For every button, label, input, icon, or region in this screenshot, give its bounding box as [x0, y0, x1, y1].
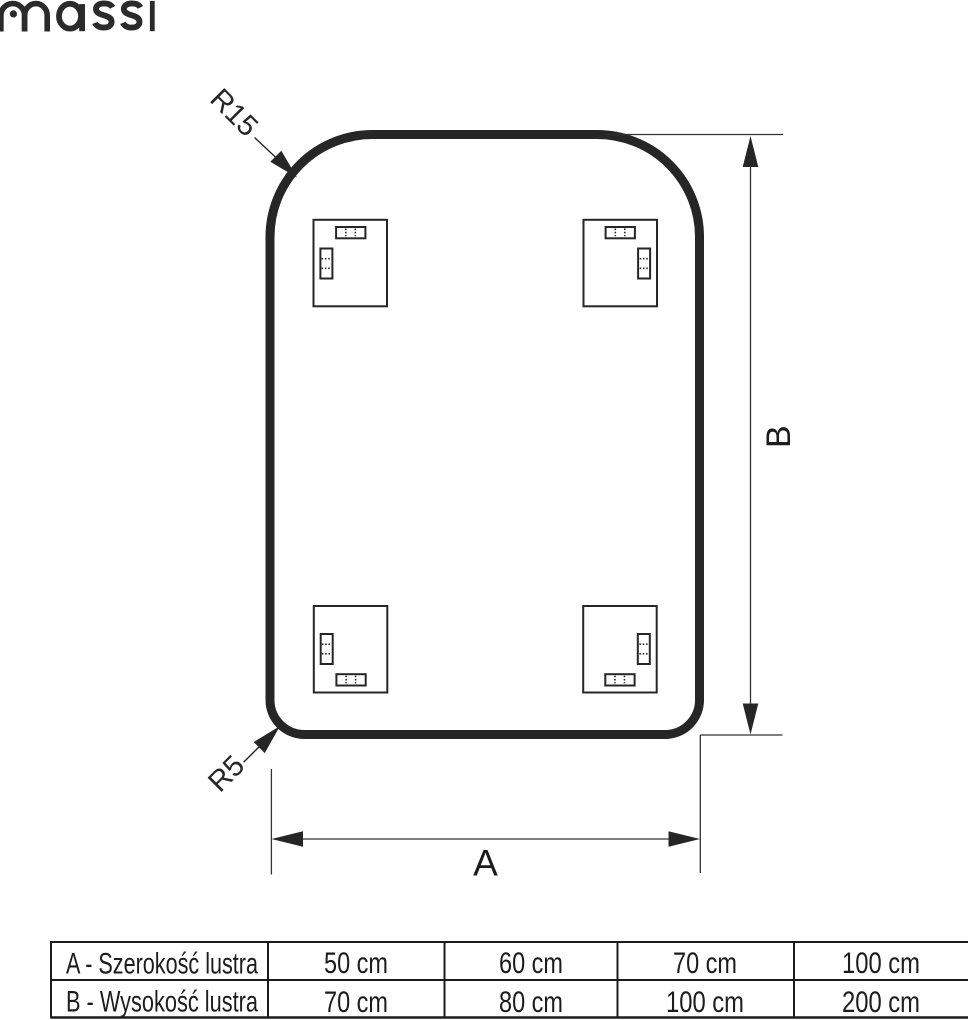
svg-text:100 cm: 100 cm: [666, 986, 744, 1019]
svg-text:70 cm: 70 cm: [673, 947, 737, 980]
svg-text:100 cm: 100 cm: [842, 947, 920, 980]
svg-text:A - Szerokość lustra: A - Szerokość lustra: [66, 948, 258, 981]
svg-text:B - Wysokość lustra: B - Wysokość lustra: [66, 986, 258, 1019]
svg-text:50 cm: 50 cm: [324, 947, 388, 980]
svg-text:80 cm: 80 cm: [499, 986, 563, 1019]
svg-text:200 cm: 200 cm: [842, 986, 920, 1019]
svg-text:60 cm: 60 cm: [499, 947, 563, 980]
svg-text:A: A: [473, 843, 498, 884]
svg-text:B: B: [760, 425, 798, 448]
svg-text:70 cm: 70 cm: [324, 986, 388, 1019]
